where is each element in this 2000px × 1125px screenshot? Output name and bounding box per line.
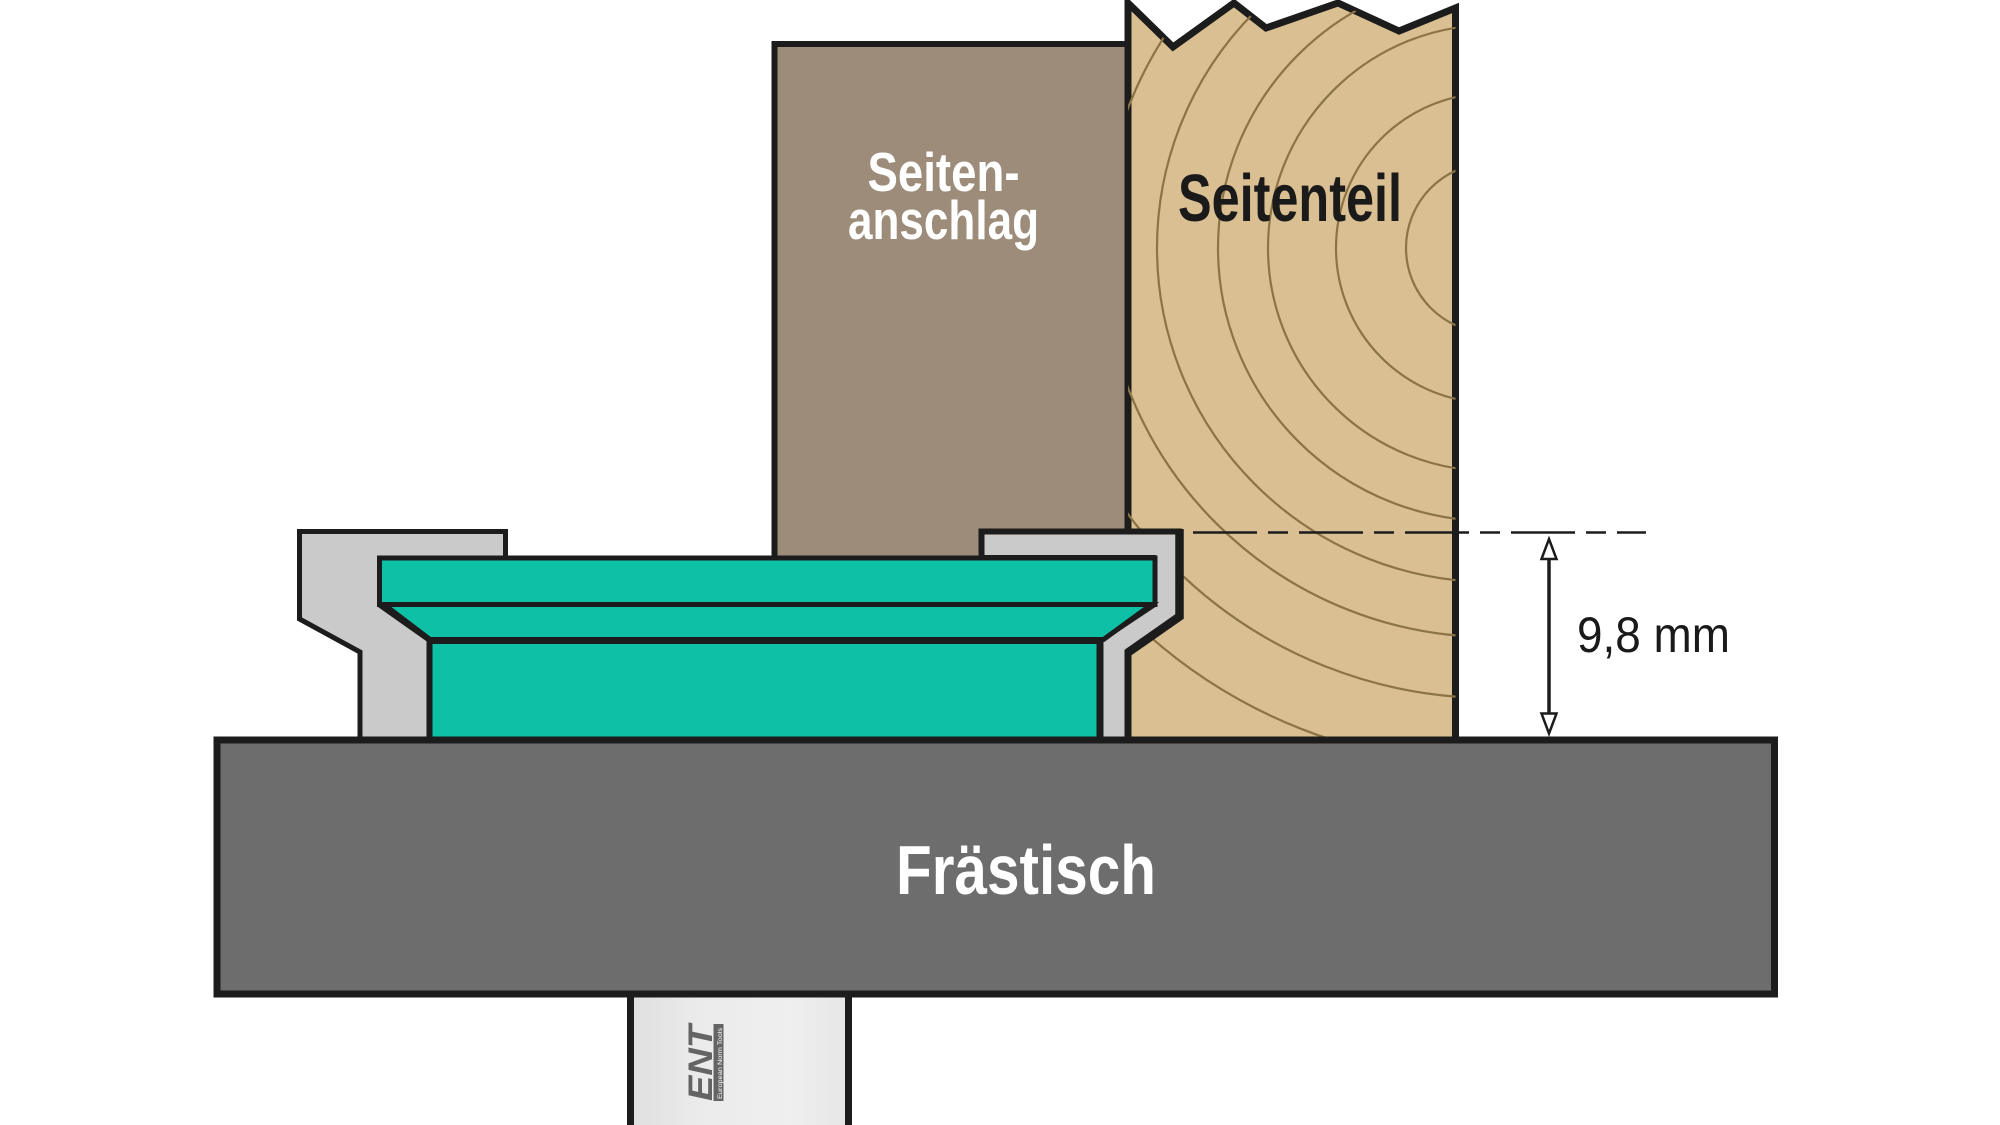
svg-text:Frästisch: Frästisch <box>896 831 1156 909</box>
svg-text:anschlag: anschlag <box>848 189 1039 251</box>
svg-text:Seitenteil: Seitenteil <box>1178 161 1402 236</box>
svg-text:European Norm Tools: European Norm Tools <box>718 1028 724 1099</box>
svg-text:9,8 mm: 9,8 mm <box>1577 607 1730 663</box>
